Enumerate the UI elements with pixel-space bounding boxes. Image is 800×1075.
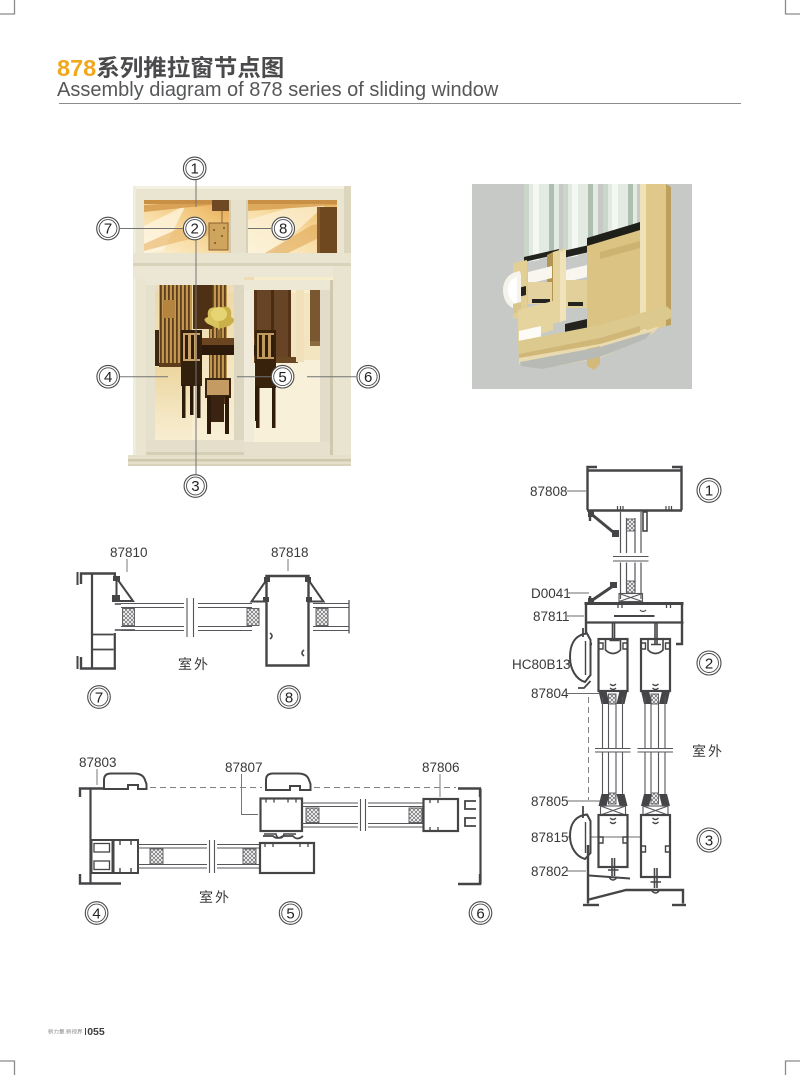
svg-text:8: 8 [279, 221, 287, 238]
svg-text:1: 1 [191, 161, 199, 178]
svg-text:87815: 87815 [531, 830, 569, 845]
svg-text:6: 6 [364, 369, 372, 386]
svg-text:87810: 87810 [110, 545, 148, 560]
svg-text:6: 6 [476, 905, 484, 922]
svg-text:87806: 87806 [422, 760, 460, 775]
svg-text:3: 3 [705, 832, 713, 849]
svg-text:8: 8 [285, 689, 293, 706]
svg-text:7: 7 [104, 221, 112, 238]
svg-text:4: 4 [92, 905, 100, 922]
svg-text:2: 2 [705, 655, 713, 672]
svg-text:87804: 87804 [531, 686, 569, 701]
svg-text:87805: 87805 [531, 794, 569, 809]
svg-text:87802: 87802 [531, 864, 569, 879]
svg-text:室外: 室外 [692, 743, 724, 759]
svg-text:7: 7 [95, 689, 103, 706]
svg-text:87811: 87811 [533, 609, 570, 624]
svg-text:87808: 87808 [530, 484, 568, 499]
svg-text:2: 2 [191, 221, 199, 238]
svg-text:5: 5 [278, 369, 286, 386]
svg-text:5: 5 [286, 905, 294, 922]
svg-text:1: 1 [705, 483, 713, 500]
svg-text:室外: 室外 [178, 656, 210, 672]
svg-text:HC80B13: HC80B13 [512, 657, 571, 672]
svg-text:87818: 87818 [271, 545, 309, 560]
svg-text:87807: 87807 [225, 760, 263, 775]
svg-text:3: 3 [191, 478, 199, 495]
svg-text:D0041: D0041 [531, 586, 571, 601]
svg-text:室外: 室外 [199, 889, 231, 905]
svg-text:87803: 87803 [79, 755, 117, 770]
svg-text:4: 4 [104, 369, 112, 386]
